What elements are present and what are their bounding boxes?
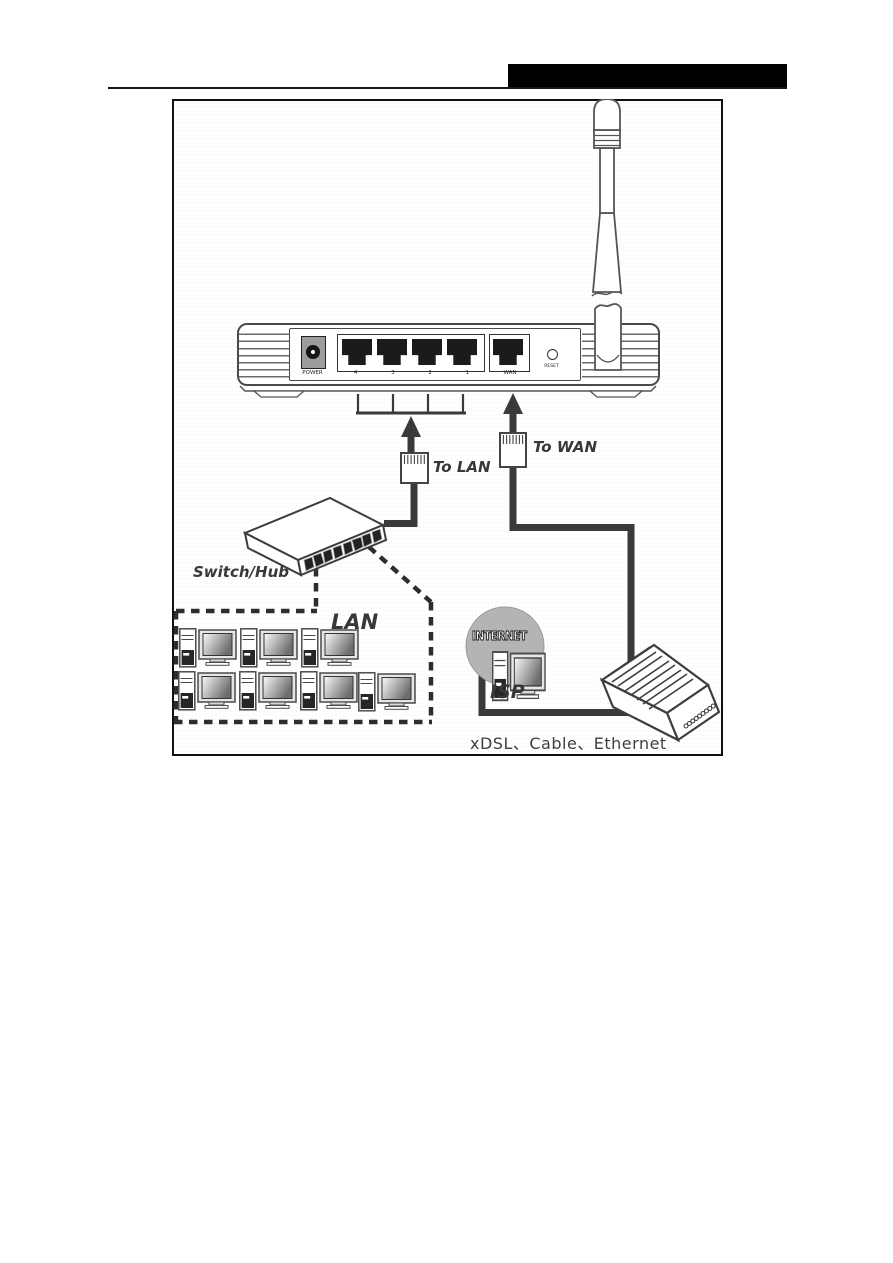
redacted-header-bar [508, 64, 787, 87]
to-wan-label: To WAN [533, 438, 597, 456]
lan-computers [179, 629, 415, 711]
lan-ports-bracket [356, 394, 466, 413]
internet-label: INTERNET [462, 628, 536, 643]
antenna [592, 99, 622, 370]
to-lan-connector [401, 453, 428, 483]
router-feet [240, 386, 656, 397]
switch-hub-label: Switch/Hub [193, 563, 289, 581]
lan-computer [302, 629, 358, 667]
lan-computer [240, 672, 296, 710]
lan-computer [241, 629, 297, 667]
isp-label: ISP [490, 681, 525, 703]
wan-types-label: xDSL、Cable、Ethernet [470, 730, 667, 754]
to-lan-label: To LAN [433, 458, 491, 476]
diagram-art [172, 99, 723, 756]
to-wan-arrow [503, 393, 523, 434]
to-wan-connector [500, 433, 526, 467]
lan-label: LAN [331, 610, 378, 634]
lan-computer [359, 673, 415, 711]
network-diagram-figure: POWER 4 3 2 1 WAN RESET [172, 99, 723, 756]
header-rule [108, 87, 787, 89]
to-lan-arrow [401, 416, 421, 454]
lan-computer [179, 672, 235, 710]
manual-page: POWER 4 3 2 1 WAN RESET [0, 0, 893, 1263]
lan-computer [301, 672, 357, 710]
lan-computer [180, 629, 236, 667]
lan-cable [384, 480, 414, 524]
